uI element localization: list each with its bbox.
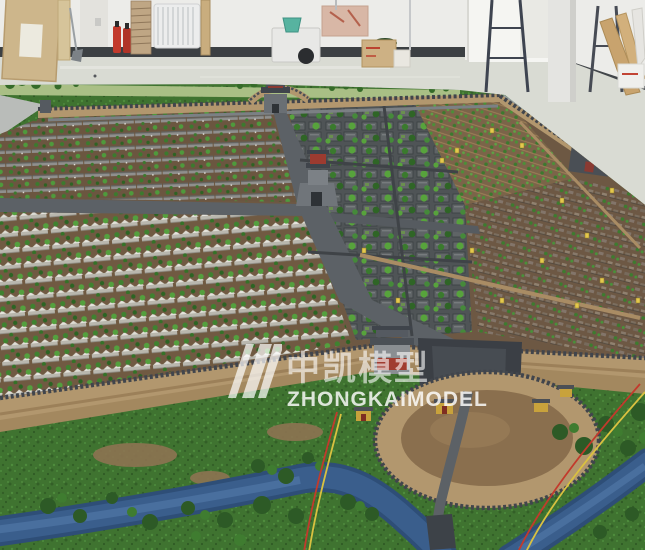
- wall-outlet: [95, 18, 101, 26]
- east-dense-district: [465, 178, 645, 360]
- leaning-plank-left: [58, 0, 70, 60]
- northwest-district-house-rows: [0, 107, 302, 202]
- leaning-door-frame: [2, 0, 60, 81]
- pillar: [548, 0, 576, 102]
- floor-speck: [94, 75, 97, 78]
- white-box-floor: [618, 64, 644, 88]
- bright-doorway: [468, 0, 562, 62]
- photo-of-city-scale-model: 中凯模型 ZHONGKAIMODEL: [0, 0, 645, 550]
- leaning-plank-right: [201, 0, 210, 55]
- watermark-latin-text: ZHONGKAIMODEL: [287, 388, 488, 411]
- pink-stone-board: [322, 6, 368, 36]
- scene-canvas: 中凯模型 ZHONGKAIMODEL: [0, 0, 645, 550]
- radiator: [154, 4, 200, 48]
- stone-slab-stack: [131, 1, 151, 54]
- floor-sheen-2: [200, 76, 460, 78]
- scale-model-table: [0, 74, 645, 550]
- wall-stain: [80, 0, 108, 48]
- moat-bridge: [426, 514, 456, 550]
- watermark-chinese-text: 中凯模型: [286, 349, 430, 389]
- floor-sheen: [60, 66, 390, 69]
- northwest-corner-tower: [40, 100, 51, 113]
